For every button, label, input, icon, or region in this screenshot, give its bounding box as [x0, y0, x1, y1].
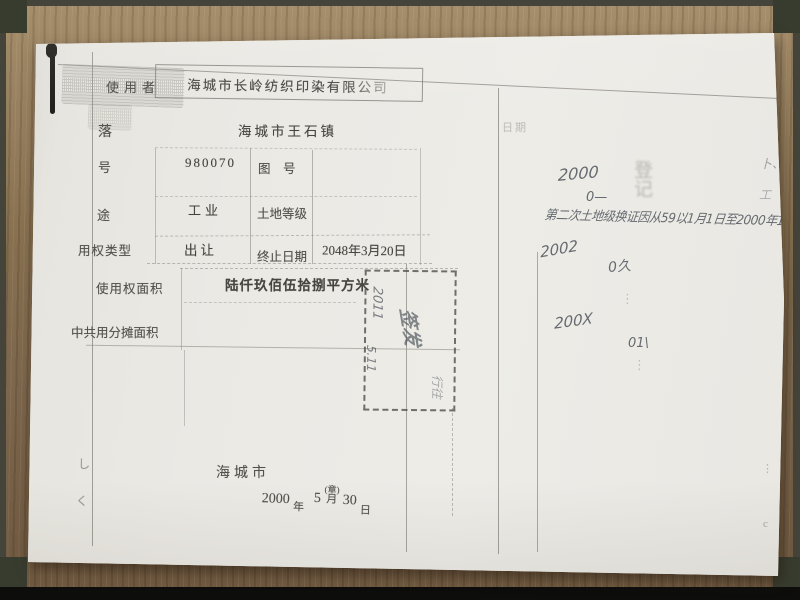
col-line-d	[420, 148, 421, 265]
margin-mark-2: く	[76, 492, 88, 509]
issue-date: 2000 年 5 (章) 月 30 日	[262, 481, 372, 505]
row-label-number: 号	[98, 157, 111, 176]
margin-mark-1: し	[78, 455, 90, 472]
row-label-shared-area: 中共用分摊面积	[71, 322, 159, 341]
faint-seal-chars: 登记	[628, 160, 655, 198]
date-year: 2000	[262, 491, 291, 507]
row-value-area: 陆仟玖佰伍拾捌平方米	[225, 274, 370, 294]
stamp-hw-2011: 2011	[369, 286, 384, 321]
stamp-hw-signature: 签发	[394, 309, 428, 347]
area-box-left	[181, 268, 182, 350]
row1-value-box	[155, 64, 423, 102]
row-value-user: 海城市长岭纺织印染有限公司	[157, 73, 419, 97]
hw-mark-01: 01\	[628, 336, 649, 351]
table-line-left	[92, 52, 93, 546]
col-line-c	[312, 150, 313, 264]
row-value-location: 海城市王石镇	[155, 120, 420, 140]
certificate-page: 使用者 海城市长岭纺织印染有限公司 落 海城市王石镇 号 980070 图 号 …	[0, 0, 800, 600]
date-month-unit: 月	[326, 494, 337, 505]
row-value-number: 980070	[185, 155, 236, 171]
right-panel-faint-header: 日期	[502, 119, 528, 135]
table-line-center-divider	[498, 88, 499, 554]
col-line-b	[250, 148, 251, 264]
area-box-top	[180, 268, 458, 269]
desk-photo: 使用者 海城市长岭纺织印染有限公司 落 海城市王石镇 号 980070 图 号 …	[0, 0, 800, 600]
stamp-hw-511: 5.11	[364, 344, 378, 372]
table-line-dashed-vertical	[452, 408, 453, 516]
ink-blob-streak	[50, 46, 55, 114]
table-line-top	[58, 64, 779, 99]
hw-note-line: 第二次土地级换证因从59以1月1日至2000年14.	[544, 204, 796, 229]
margin-mark-3: ⋮	[762, 462, 773, 475]
lower-vertical-stub	[184, 350, 185, 426]
faint-marks-b: ⋮	[633, 358, 646, 373]
stamp-placeholder-box: 2011 5.11 签发 行往	[363, 270, 456, 412]
hw-year-2000: 2000	[558, 162, 600, 185]
row-value-enddate: 2048年3月20日	[322, 240, 407, 260]
row-value-use: 工业	[188, 200, 222, 219]
margin-mark-4: c	[763, 518, 768, 530]
area-box-bottom	[184, 302, 356, 303]
row-sublabel-mapno: 图 号	[258, 158, 296, 177]
row-label-area: 使用权面积	[96, 278, 164, 297]
row-sublabel-enddate: 终止日期	[257, 246, 307, 265]
row-label-user: 使用者	[106, 77, 160, 96]
row-separator-4	[147, 263, 432, 264]
hw-mark-bu: 卜、	[760, 155, 784, 172]
row-label-location: 落	[98, 121, 112, 141]
date-month: 5	[314, 491, 322, 506]
table-line-right-vertical	[537, 252, 538, 552]
hw-year-2002: 2002	[540, 237, 578, 262]
date-seal-note: (章)	[324, 485, 339, 495]
row-separator-1	[155, 147, 417, 150]
row-sublabel-landgrade: 土地等级	[257, 203, 307, 222]
stamp-hw-note: 行往	[429, 375, 446, 399]
paper-wrap: 使用者 海城市长岭纺织印染有限公司 落 海城市王石镇 号 980070 图 号 …	[0, 0, 800, 600]
hw-mark-02: 0久	[607, 255, 632, 277]
row-separator-3	[155, 234, 430, 236]
ink-blob-head	[46, 43, 57, 58]
hw-mark-gong: 工	[759, 186, 771, 203]
shared-row-bottom	[86, 345, 460, 351]
col-line-a	[155, 148, 156, 264]
issuer-city: 海城市	[216, 462, 270, 482]
table-line-mid-vertical	[406, 264, 407, 552]
row-value-righttype: 出让	[184, 239, 217, 259]
copier-smudge	[61, 64, 184, 108]
faint-marks-a: ⋮	[621, 292, 634, 307]
date-year-unit: 年	[293, 501, 304, 513]
date-day: 30	[342, 493, 357, 508]
copier-smudge-small	[88, 103, 133, 131]
row-separator-2	[155, 196, 417, 197]
row-label-use: 途	[97, 205, 110, 224]
row-label-righttype: 用权类型	[78, 240, 132, 259]
hw-zero-dash: 0—	[586, 190, 607, 205]
hw-year-200x: 200X	[554, 309, 593, 333]
date-day-unit: 日	[360, 505, 371, 517]
